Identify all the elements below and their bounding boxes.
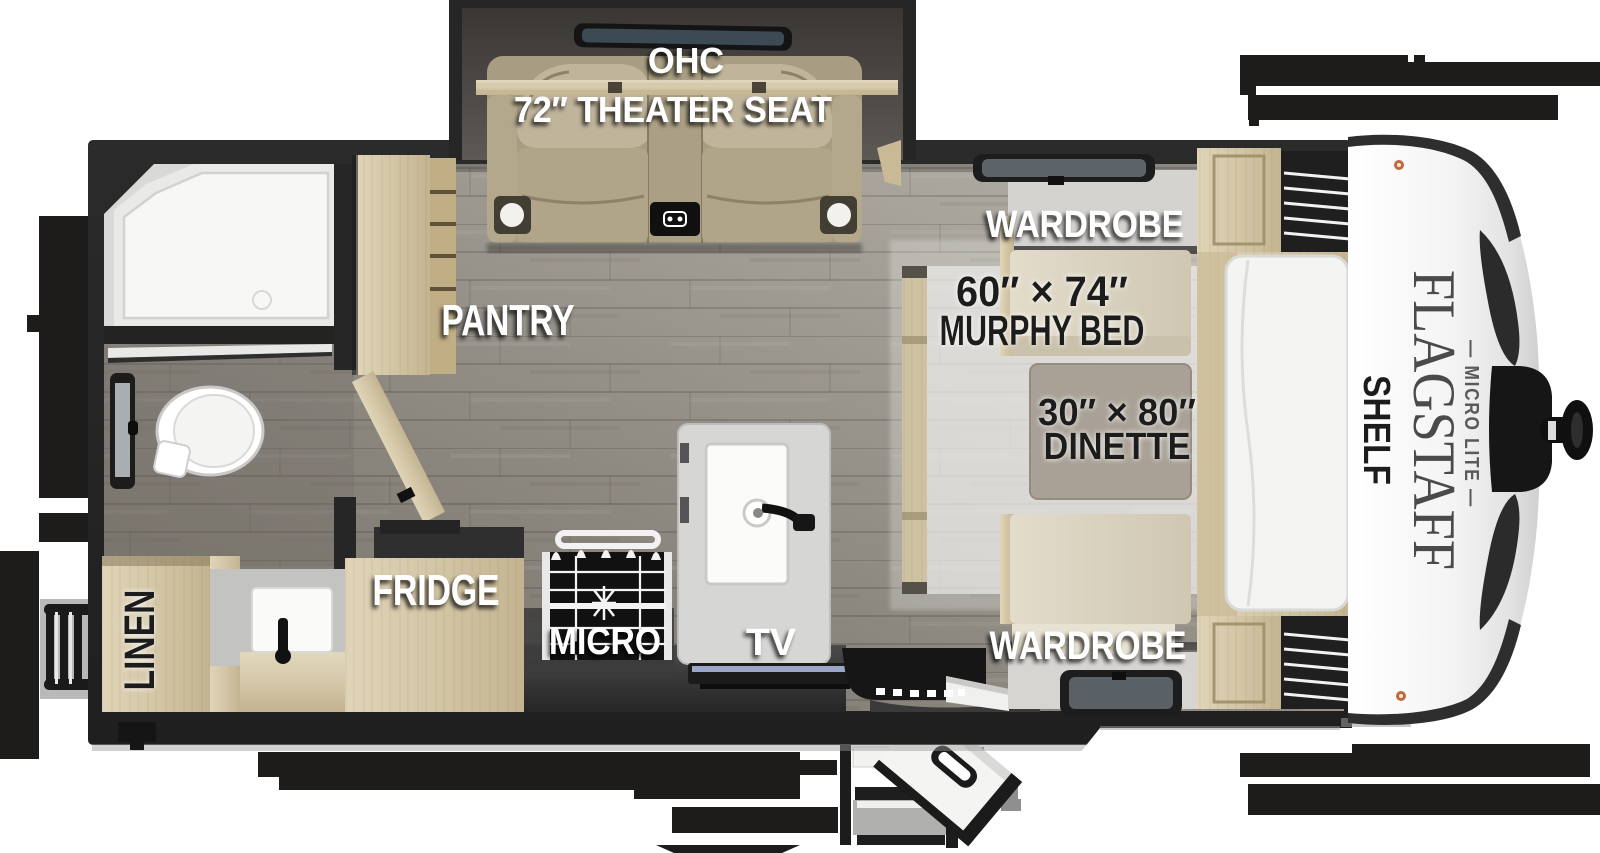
svg-text:LINEN: LINEN (116, 590, 164, 691)
svg-text:MICRO: MICRO (549, 621, 661, 663)
svg-text:SHELF: SHELF (1355, 375, 1397, 485)
svg-text:PANTRY: PANTRY (442, 296, 575, 345)
svg-text:FRIDGE: FRIDGE (373, 566, 500, 615)
svg-text:— MICRO LITE —: — MICRO LITE — (1460, 340, 1482, 508)
svg-text:72″ THEATER SEAT: 72″ THEATER SEAT (514, 89, 832, 130)
svg-text:OHC: OHC (648, 40, 724, 81)
svg-text:DINETTE: DINETTE (1044, 426, 1191, 468)
svg-text:FLAGSTAFF: FLAGSTAFF (1401, 270, 1467, 570)
svg-text:MURPHY BED: MURPHY BED (940, 307, 1145, 355)
svg-text:WARDROBE: WARDROBE (990, 624, 1187, 668)
svg-text:WARDROBE: WARDROBE (986, 204, 1184, 246)
svg-text:TV: TV (746, 622, 797, 664)
